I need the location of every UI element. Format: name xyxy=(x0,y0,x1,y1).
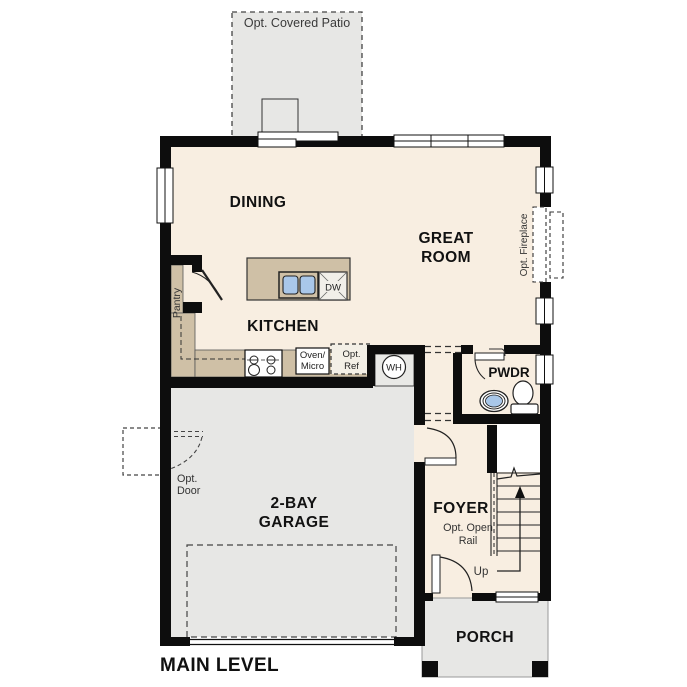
opt-ref-label-1: Opt. xyxy=(343,349,361,360)
label-great-room-2: ROOM xyxy=(421,249,471,266)
label-pwdr: PWDR xyxy=(488,365,529,380)
wall-pwdr-bottom xyxy=(453,414,551,424)
water-heater: WH xyxy=(375,354,414,386)
wall-pantry-stub xyxy=(192,255,202,272)
cooktop xyxy=(245,350,282,377)
wall-foyer-bottom-right xyxy=(537,593,551,601)
label-kitchen: KITCHEN xyxy=(247,318,319,335)
optional-refrigerator: Opt. Ref xyxy=(331,344,372,374)
porch-post-left xyxy=(422,661,438,677)
window-dining-left xyxy=(157,168,173,223)
window-greatroom-right-2 xyxy=(536,298,553,324)
label-opt-open-rail-1: Opt. Open xyxy=(443,522,493,534)
window-top-triple xyxy=(394,135,504,147)
label-patio: Opt. Covered Patio xyxy=(244,16,350,30)
patio xyxy=(232,12,362,137)
label-dining: DINING xyxy=(230,194,287,211)
label-porch: PORCH xyxy=(456,629,514,646)
patio-landing xyxy=(262,99,298,137)
label-main-level: MAIN LEVEL xyxy=(160,655,279,676)
floorplan-svg: DW Oven/ Micro Opt. Ref xyxy=(0,0,687,687)
label-garage-2: GARAGE xyxy=(259,514,329,531)
label-opt-door-1: Opt. xyxy=(177,473,197,485)
opt-ref-label-2: Ref xyxy=(344,361,359,372)
oven-micro-label-2: Micro xyxy=(301,361,324,372)
dishwasher: DW xyxy=(319,272,347,300)
wall-garage-foyer-upper xyxy=(414,345,425,425)
wall-pwdr-top-right xyxy=(504,345,551,354)
sink-basin-right xyxy=(300,276,315,294)
wall-garage-foyer-lower xyxy=(414,462,425,646)
wall-garage-bottom-left xyxy=(160,637,190,646)
window-greatroom-right-1 xyxy=(536,167,553,193)
pwdr-sink xyxy=(480,391,508,412)
label-garage-1: 2-BAY xyxy=(270,495,317,512)
wall-foyer-bottom-mid xyxy=(472,593,498,601)
label-pantry: Pantry xyxy=(171,287,183,318)
wall-stairwell xyxy=(487,425,497,473)
wall-garage-top xyxy=(160,377,373,388)
floorplan-canvas: DW Oven/ Micro Opt. Ref xyxy=(0,0,687,687)
label-foyer: FOYER xyxy=(433,500,488,517)
label-up: Up xyxy=(474,566,489,578)
wall-pwdr-left xyxy=(453,353,462,424)
wall-pwdr-top-left xyxy=(461,345,473,354)
optional-fireplace xyxy=(533,207,563,282)
oven-micro: Oven/ Micro xyxy=(296,348,329,374)
wall-pantry-elbow xyxy=(183,302,202,313)
oven-micro-label-1: Oven/ xyxy=(300,350,326,361)
sink-basin-left xyxy=(283,276,298,294)
dishwasher-label: DW xyxy=(325,283,341,294)
label-opt-open-rail-2: Rail xyxy=(459,535,478,547)
water-heater-label: WH xyxy=(386,363,402,374)
label-opt-door-2: Door xyxy=(177,485,201,497)
stairwell-void xyxy=(497,424,540,472)
window-pwdr xyxy=(536,355,553,384)
label-opt-fireplace: Opt. Fireplace xyxy=(519,213,530,276)
opt-door-landing-dashed xyxy=(123,428,163,475)
wall-garage-bottom-right xyxy=(394,637,425,646)
label-great-room-1: GREAT xyxy=(418,230,473,247)
porch-post-right xyxy=(532,661,548,677)
wall-wh-left xyxy=(367,345,375,386)
counter-left xyxy=(171,313,195,377)
wall-foyer-bottom-left xyxy=(414,593,433,601)
window-foyer-front xyxy=(496,592,538,602)
